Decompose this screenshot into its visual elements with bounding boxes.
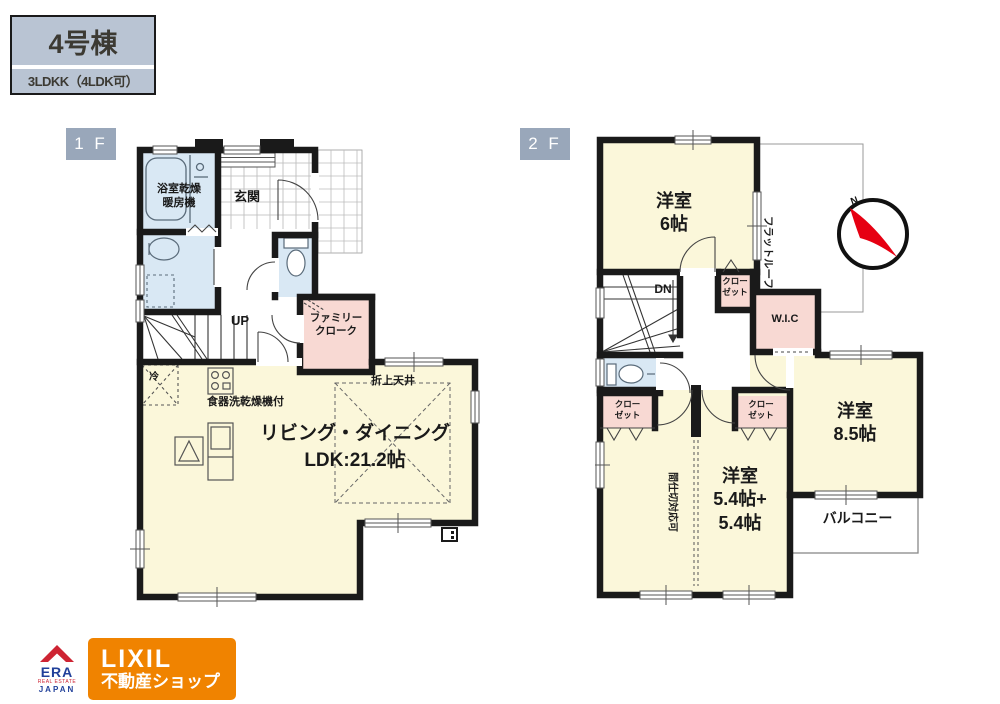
entrance-label: 玄関 bbox=[218, 189, 276, 205]
closet-right-label: クローゼット bbox=[734, 399, 788, 420]
era-logo: ERA REAL ESTATE JAPAN bbox=[28, 638, 86, 700]
fridge-label: 冷 bbox=[144, 372, 164, 385]
closet-left-label: クローゼット bbox=[600, 399, 655, 420]
era-country: JAPAN bbox=[39, 686, 76, 694]
floorplan-page: 4号棟 3LDKK（4LDK可） 1 F 2 F bbox=[0, 0, 1000, 704]
flat-roof-label: フラットルーフ bbox=[761, 182, 774, 322]
lixil-brand-name: LIXIL bbox=[101, 646, 236, 672]
floor-tag-2f: 2 F bbox=[520, 128, 570, 160]
porch-tiles bbox=[318, 150, 362, 253]
lixil-shop-logo: LIXIL 不動産ショップ bbox=[88, 638, 236, 700]
ldk-size-label: LDK:21.2帖 bbox=[245, 449, 465, 473]
stairs-down-label: DN bbox=[643, 282, 683, 297]
shoe-cabinet-icon bbox=[220, 153, 275, 167]
wic-label: W.I.C bbox=[753, 313, 817, 327]
brand-logo: ERA REAL ESTATE JAPAN LIXIL 不動産ショップ bbox=[28, 638, 236, 700]
wall-pier-left bbox=[195, 139, 223, 150]
era-name: ERA bbox=[41, 665, 74, 679]
washroom-floor bbox=[140, 232, 218, 312]
building-subtitle: 3LDKK（4LDK可） bbox=[12, 69, 154, 93]
compass: N bbox=[828, 186, 918, 281]
era-roof-icon bbox=[38, 644, 76, 664]
dishwasher-label: 食器洗乾燥機付 bbox=[178, 396, 313, 410]
floor-plan-1f: 浴室乾燥暖房機 玄関 UP ファミリークローク 冷 食器洗乾燥機付 折上天井 リ… bbox=[120, 125, 480, 625]
balcony-label: バルコニー bbox=[795, 510, 920, 528]
floor-tag-1f: 1 F bbox=[66, 128, 116, 160]
lixil-service-name: 不動産ショップ bbox=[101, 672, 236, 692]
partition-label: 間仕切対応可 bbox=[665, 452, 678, 552]
closet-top-label: クローゼット bbox=[713, 276, 757, 297]
stairs-up-label: UP bbox=[220, 313, 260, 329]
bed54-label: 洋室5.4帖+5.4帖 bbox=[688, 465, 792, 535]
building-title: 4号棟 bbox=[12, 17, 154, 65]
building-header: 4号棟 3LDKK（4LDK可） bbox=[10, 15, 156, 95]
bed85-label: 洋室8.5帖 bbox=[808, 400, 902, 447]
bathroom-label: 浴室乾燥暖房機 bbox=[140, 183, 218, 211]
ldk-name-label: リビング・ダイニング bbox=[245, 422, 465, 446]
wall-pier-right bbox=[260, 139, 294, 150]
raised-ceiling-label: 折上天井 bbox=[338, 375, 448, 389]
partition-wall-stub bbox=[691, 385, 701, 437]
outdoor-unit-icon bbox=[442, 528, 457, 541]
family-cloak-label: ファミリークローク bbox=[296, 312, 376, 338]
bed6-label: 洋室6帖 bbox=[630, 190, 718, 237]
